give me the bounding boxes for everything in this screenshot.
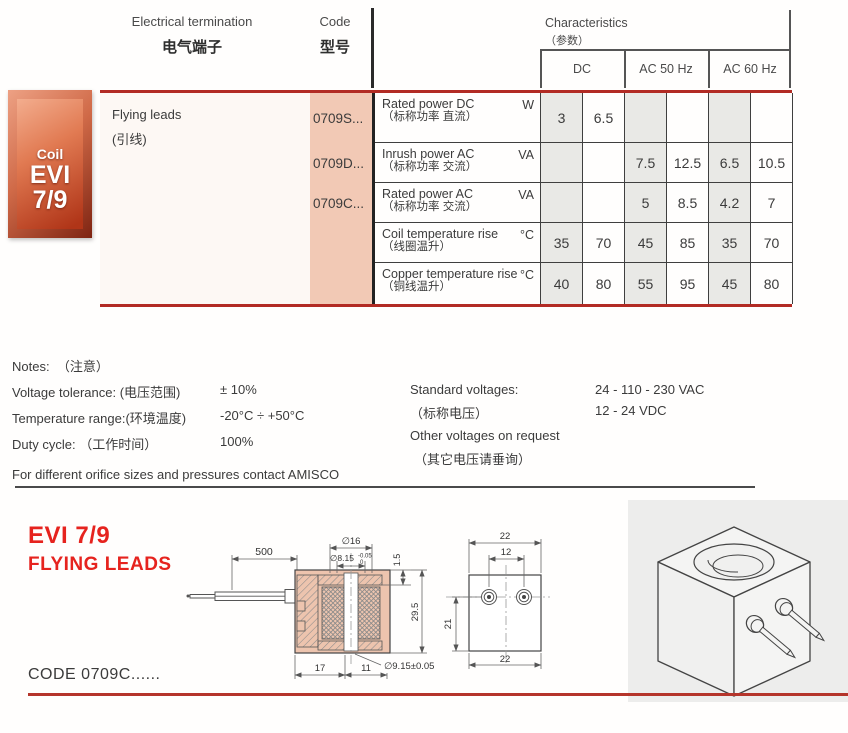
lead-tip — [187, 595, 190, 598]
row-unit: VA — [518, 188, 534, 202]
row-label-zh: （标称功率 交流） — [382, 161, 540, 175]
value-cell — [750, 93, 792, 142]
section-divider-line — [15, 486, 755, 488]
value-cell — [708, 93, 750, 142]
row-label: Inrush power AC （标称功率 交流） VA — [375, 143, 540, 182]
header-divider-line — [371, 8, 374, 88]
notes-title-zh: （注意） — [57, 359, 109, 374]
duty-cycle-label: Duty cycle: — [12, 437, 76, 452]
value-cell: 4.2 — [708, 183, 750, 222]
winding-right — [358, 587, 380, 639]
code-0709d: 0709D... — [310, 143, 372, 183]
lead-exit-right — [517, 590, 532, 605]
code-label-zh: 型号 — [305, 36, 365, 57]
value-cell — [582, 183, 624, 222]
value-cell: 7 — [750, 183, 792, 222]
standard-voltages-vdc: 12 - 24 VDC — [595, 403, 667, 422]
value-cell: 35 — [708, 223, 750, 262]
table-row: Inrush power AC （标称功率 交流） VA 7.5 12.5 6.… — [375, 143, 792, 183]
header-code: Code 型号 — [305, 14, 365, 57]
value-cell: 45 — [624, 223, 666, 262]
value-cell: 70 — [582, 223, 624, 262]
value-cell: 8.5 — [666, 183, 708, 222]
value-cell — [582, 143, 624, 182]
row-unit: W — [522, 98, 534, 112]
dim-pin-spacing: 12 — [501, 547, 512, 558]
dim-dia-bottom: ∅9.15±0.05 — [384, 661, 434, 672]
voltages-block: Standard voltages: 24 - 110 - 230 VAC （标… — [410, 382, 704, 474]
dim-pin-height: 21 — [443, 619, 454, 630]
dim-width-left: 17 — [315, 663, 326, 674]
dim-width-bottom: 22 — [500, 654, 511, 665]
note-temperature-range: Temperature range:(环境温度) -20°C ÷ +50°C — [12, 408, 339, 427]
value-cell: 12.5 — [666, 143, 708, 182]
electrical-termination-label-en: Electrical termination — [108, 14, 276, 29]
header-electrical-termination: Electrical termination 电气端子 — [108, 14, 276, 57]
row-label: Rated power AC （标称功率 交流） VA — [375, 183, 540, 222]
table-row: Rated power AC （标称功率 交流） VA 5 8.5 4.2 7 — [375, 183, 792, 223]
lead-exit-left — [482, 590, 497, 605]
value-cell: 80 — [582, 263, 624, 304]
badge-line3: 7/9 — [33, 188, 68, 213]
code-label-en: Code — [305, 14, 365, 29]
row-label: Copper temperature rise （铜线温升） °C — [375, 263, 540, 304]
lead-sleeve — [285, 590, 295, 604]
column-dc: DC — [540, 62, 624, 76]
row-label-zh: （标称功率 交流） — [382, 201, 540, 215]
value-cell: 10.5 — [750, 143, 792, 182]
dim-height: 29.5 — [410, 603, 421, 622]
table-row: Coil temperature rise （线圈温升） °C 35 70 45… — [375, 223, 792, 263]
dim-plate-thickness: 1.5 — [392, 554, 402, 567]
datasheet-page: Electrical termination 电气端子 Code 型号 Char… — [0, 0, 848, 733]
temperature-range-zh: (环境温度) — [125, 411, 186, 426]
badge-line1: Coil — [37, 146, 63, 162]
value-cell: 70 — [750, 223, 792, 262]
note-duty-cycle: Duty cycle: （工作时间） 100% — [12, 434, 339, 453]
row-label: Coil temperature rise （线圈温升） °C — [375, 223, 540, 262]
temperature-range-value: -20°C ÷ +50°C — [220, 408, 304, 427]
voltage-tolerance-zh: (电压范围) — [120, 385, 181, 400]
value-cell: 6.5 — [708, 143, 750, 182]
electrical-termination-label-zh: 电气端子 — [108, 36, 276, 57]
value-cell: 55 — [624, 263, 666, 304]
row-unit: VA — [518, 148, 534, 162]
front-view: 22 12 21 22 — [443, 531, 550, 669]
standard-voltages-vac: 24 - 110 - 230 VAC — [595, 382, 704, 397]
note-orifice: For different orifice sizes and pressure… — [12, 467, 339, 482]
winding-left — [322, 587, 344, 639]
value-cell: 7.5 — [624, 143, 666, 182]
voltage-tolerance-label: Voltage tolerance: — [12, 385, 116, 400]
row-label-en: Inrush power AC — [382, 147, 540, 161]
table-row: Rated power DC （标称功率 直流） W 3 6.5 — [375, 93, 792, 143]
value-cell — [540, 183, 582, 222]
temperature-range-label: Temperature range: — [12, 411, 125, 426]
notes-title: Notes: （注意） — [12, 356, 339, 375]
row-label-en: Copper temperature rise — [382, 267, 540, 281]
dim-lead-length: 500 — [255, 546, 273, 558]
dim-width-right: 11 — [361, 663, 371, 674]
value-cell: 95 — [666, 263, 708, 304]
termination-label-en: Flying leads — [112, 107, 310, 122]
isometric-coil-drawing — [628, 500, 848, 702]
notes-title-en: Notes: — [12, 359, 50, 374]
dimensional-drawing: 500 ∅16 ∅8.15 -0.05 0 — [90, 513, 635, 708]
side-section-view: 500 ∅16 ∅8.15 -0.05 0 — [187, 536, 435, 679]
front-view-body — [469, 575, 541, 651]
duty-cycle-zh: （工作时间） — [79, 437, 157, 452]
dim-bore-tol-upper: -0.05 — [358, 554, 372, 560]
standard-voltages-zh: （标称电压） — [410, 403, 595, 422]
row-label-zh: （线圈温升） — [382, 241, 540, 255]
value-cell: 35 — [540, 223, 582, 262]
code-column: 0709S... 0709D... 0709C... — [310, 93, 372, 304]
value-cell: 6.5 — [582, 93, 624, 142]
other-voltages-zh: （其它电压请垂询） — [410, 449, 704, 468]
header-characteristics: Characteristics （参数） — [545, 16, 628, 48]
characteristics-label-zh: （参数） — [545, 32, 628, 48]
row-label-zh: （标称功率 直流） — [382, 111, 540, 125]
value-cell: 45 — [708, 263, 750, 304]
bottom-red-line — [28, 693, 848, 696]
coil-evi-badge-face: Coil EVI 7/9 — [17, 99, 83, 229]
termination-cell: Flying leads (引线) — [100, 93, 310, 304]
dim-dia-top: ∅16 — [342, 536, 361, 547]
row-label-en: Rated power AC — [382, 187, 540, 201]
value-cell: 85 — [666, 223, 708, 262]
row-label: Rated power DC （标称功率 直流） W — [375, 93, 540, 142]
other-voltages-label: Other voltages on request — [410, 428, 704, 443]
termination-label-zh: (引线) — [112, 129, 310, 148]
column-ac60: AC 60 Hz — [708, 62, 792, 76]
row-label-en: Coil temperature rise — [382, 227, 540, 241]
note-voltage-tolerance: Voltage tolerance: (电压范围) ± 10% — [12, 382, 339, 401]
grid-v4 — [789, 10, 791, 88]
row-label-en: Rated power DC — [382, 97, 540, 111]
coil-evi-badge: Coil EVI 7/9 — [8, 90, 92, 238]
value-cell: 5 — [624, 183, 666, 222]
duty-cycle-value: 100% — [220, 434, 253, 453]
dim-width-top: 22 — [500, 531, 511, 542]
row-unit: °C — [520, 228, 534, 242]
badge-line2: EVI — [30, 164, 70, 188]
table-row: Copper temperature rise （铜线温升） °C 40 80 … — [375, 263, 792, 304]
code-0709s: 0709S... — [310, 93, 372, 143]
row-label-zh: （铜线温升） — [382, 281, 540, 295]
value-cell — [666, 93, 708, 142]
characteristics-table: Flying leads (引线) 0709S... 0709D... 0709… — [100, 90, 792, 307]
dim-bore-tol-lower: 0 — [360, 560, 364, 566]
value-cell — [624, 93, 666, 142]
standard-voltages-row1: Standard voltages: 24 - 110 - 230 VAC — [410, 382, 704, 397]
characteristics-underline — [540, 49, 790, 51]
notes-block: Notes: （注意） Voltage tolerance: (电压范围) ± … — [12, 356, 339, 489]
characteristics-label-en: Characteristics — [545, 16, 628, 30]
column-ac50: AC 50 Hz — [624, 62, 708, 76]
standard-voltages-label: Standard voltages: — [410, 382, 595, 397]
value-cell — [540, 143, 582, 182]
code-0709c: 0709C... — [310, 183, 372, 223]
value-cell: 80 — [750, 263, 792, 304]
dim-bore: ∅8.15 — [330, 553, 354, 563]
voltage-tolerance-value: ± 10% — [220, 382, 257, 401]
table-rows: Rated power DC （标称功率 直流） W 3 6.5 Inrush … — [375, 93, 793, 304]
row-unit: °C — [520, 268, 534, 282]
value-cell: 40 — [540, 263, 582, 304]
value-cell: 3 — [540, 93, 582, 142]
standard-voltages-row2: （标称电压） 12 - 24 VDC — [410, 403, 704, 422]
